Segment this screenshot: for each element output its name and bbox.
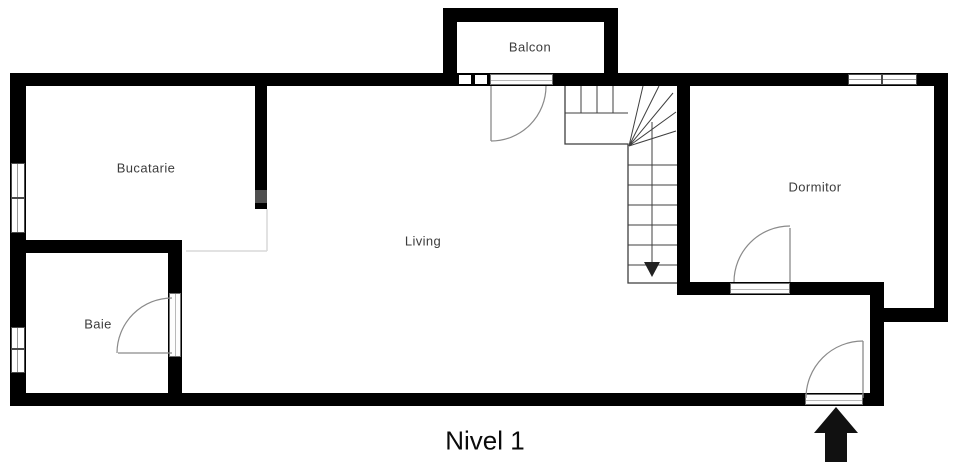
room-label-dormitor: Dormitor <box>788 180 841 195</box>
thin-lines-overlay <box>0 0 960 472</box>
room-label-bucatarie: Bucatarie <box>117 161 176 176</box>
room-label-living: Living <box>405 234 441 249</box>
level-label: Nivel 1 <box>445 426 524 457</box>
room-label-balcon: Balcon <box>509 40 551 55</box>
entrance-arrow-shaft <box>825 432 847 462</box>
floor-plan: Balcon Bucatarie Living Dormitor Baie Ni… <box>0 0 960 472</box>
kitchen-counter-outline <box>186 209 267 251</box>
stairs-upper-treads <box>565 86 628 113</box>
baie-door-arc <box>117 298 172 353</box>
entrance-arrow-head <box>814 407 858 433</box>
dormitor-door-arc <box>734 226 790 282</box>
stairs-down-arrow-icon <box>644 262 660 277</box>
room-label-baie: Baie <box>84 317 112 332</box>
balcony-door-arc <box>491 86 546 141</box>
entrance-arrow-icon <box>814 407 858 462</box>
entrance-door-arc <box>806 341 863 398</box>
